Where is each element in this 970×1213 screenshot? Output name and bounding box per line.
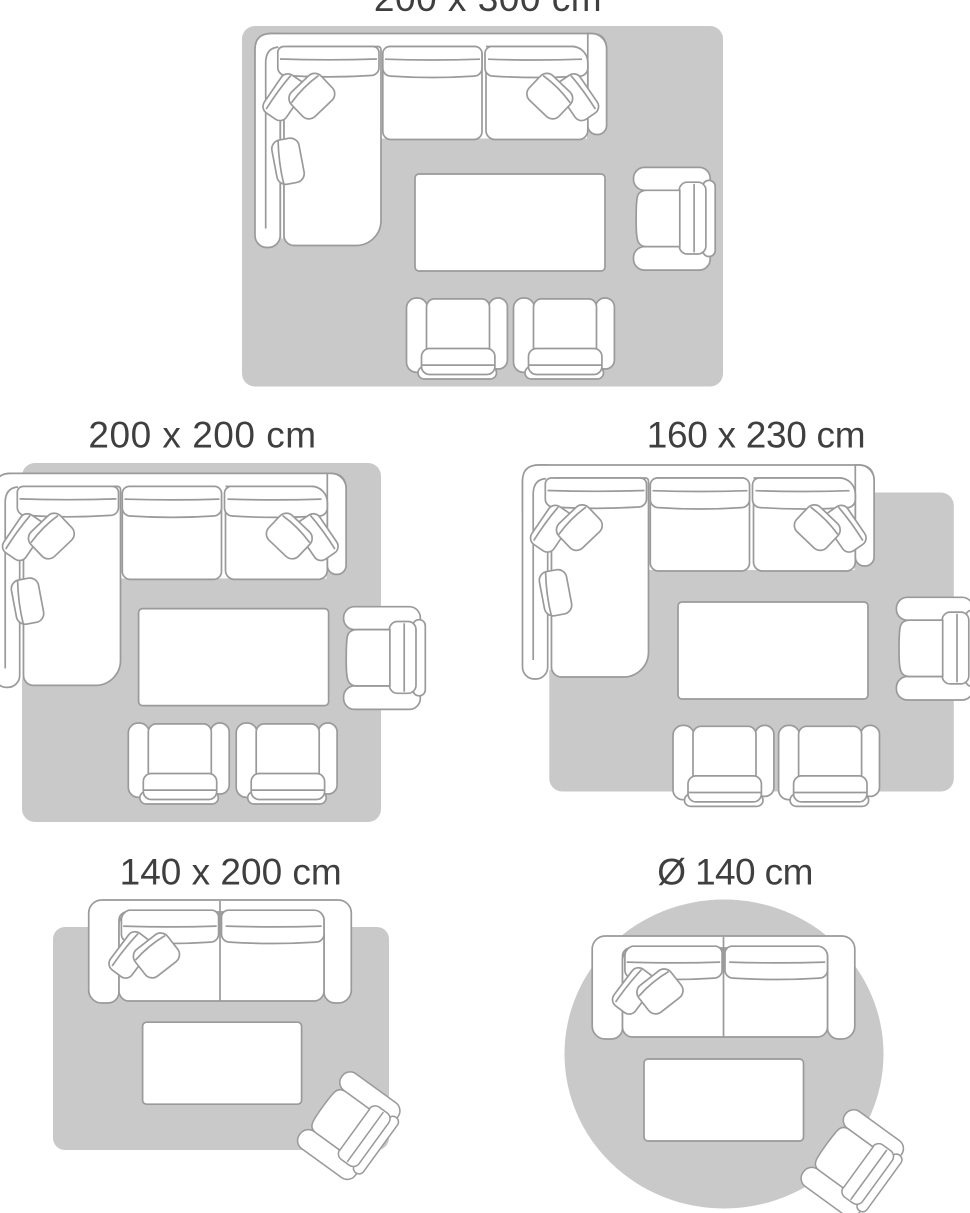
svg-text:140 x 200 cm: 140 x 200 cm (120, 852, 342, 893)
svg-text:200 x 300 cm: 200 x 300 cm (374, 0, 602, 19)
svg-text:Ø 140 cm: Ø 140 cm (657, 852, 813, 893)
svg-text:160 x 230 cm: 160 x 230 cm (647, 415, 866, 456)
svg-text:200 x 200 cm: 200 x 200 cm (88, 415, 316, 456)
